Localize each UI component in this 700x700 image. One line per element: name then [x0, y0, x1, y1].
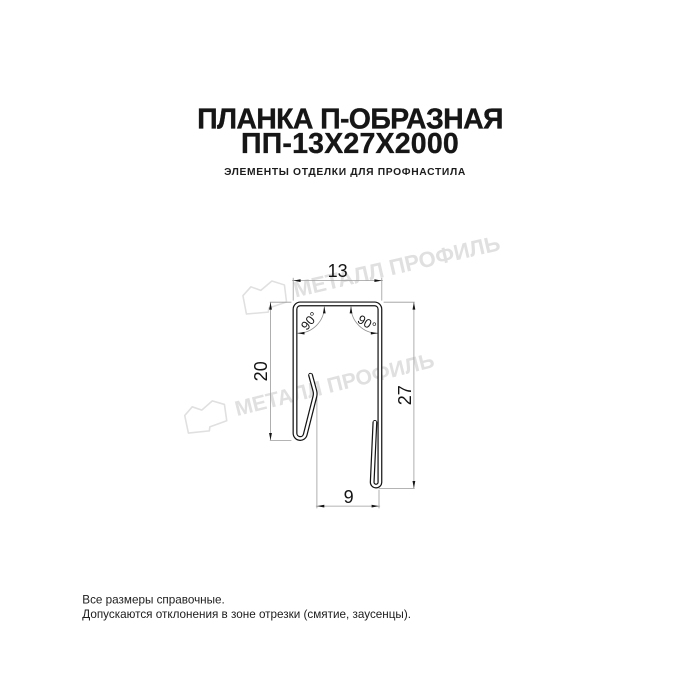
- svg-text:90°: 90°: [355, 312, 378, 334]
- svg-text:ПП-13Х27Х2000: ПП-13Х27Х2000: [241, 128, 459, 160]
- svg-text:20: 20: [251, 361, 271, 381]
- svg-text:27: 27: [395, 385, 415, 405]
- svg-text:МЕТАЛЛ ПРОФИЛЬ: МЕТАЛЛ ПРОФИЛЬ: [291, 230, 503, 302]
- svg-text:90°: 90°: [298, 309, 321, 333]
- svg-text:Допускаются отклонения в зоне: Допускаются отклонения в зоне отрезки (с…: [82, 608, 411, 621]
- svg-text:ЭЛЕМЕНТЫ ОТДЕЛКИ ДЛЯ ПРОФНАСТИ: ЭЛЕМЕНТЫ ОТДЕЛКИ ДЛЯ ПРОФНАСТИЛА: [224, 167, 466, 178]
- svg-text:13: 13: [328, 261, 348, 281]
- svg-text:9: 9: [344, 487, 354, 507]
- svg-text:Все размеры справочные.: Все размеры справочные.: [82, 593, 224, 606]
- svg-text:МЕТАЛЛ ПРОФИЛЬ: МЕТАЛЛ ПРОФИЛЬ: [232, 348, 436, 421]
